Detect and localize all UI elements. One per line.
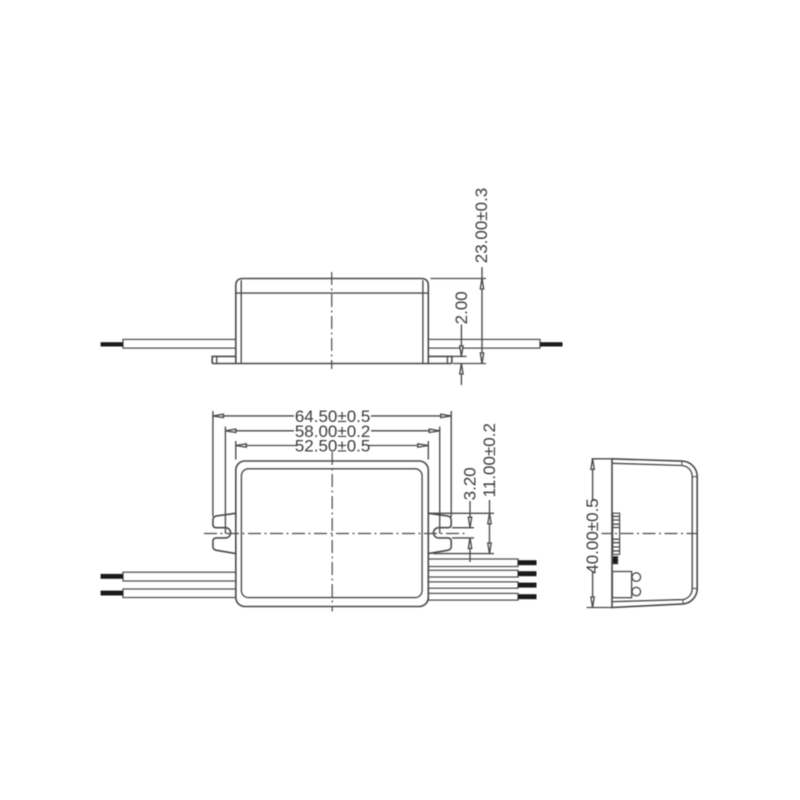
svg-text:11.00±0.2: 11.00±0.2	[480, 423, 499, 497]
svg-text:23.00±0.3: 23.00±0.3	[472, 188, 491, 264]
svg-text:52.50±0.5: 52.50±0.5	[295, 437, 371, 456]
svg-text:3.20: 3.20	[461, 467, 480, 500]
svg-text:40.00±0.5: 40.00±0.5	[583, 498, 602, 574]
svg-text:2.00: 2.00	[452, 291, 471, 324]
